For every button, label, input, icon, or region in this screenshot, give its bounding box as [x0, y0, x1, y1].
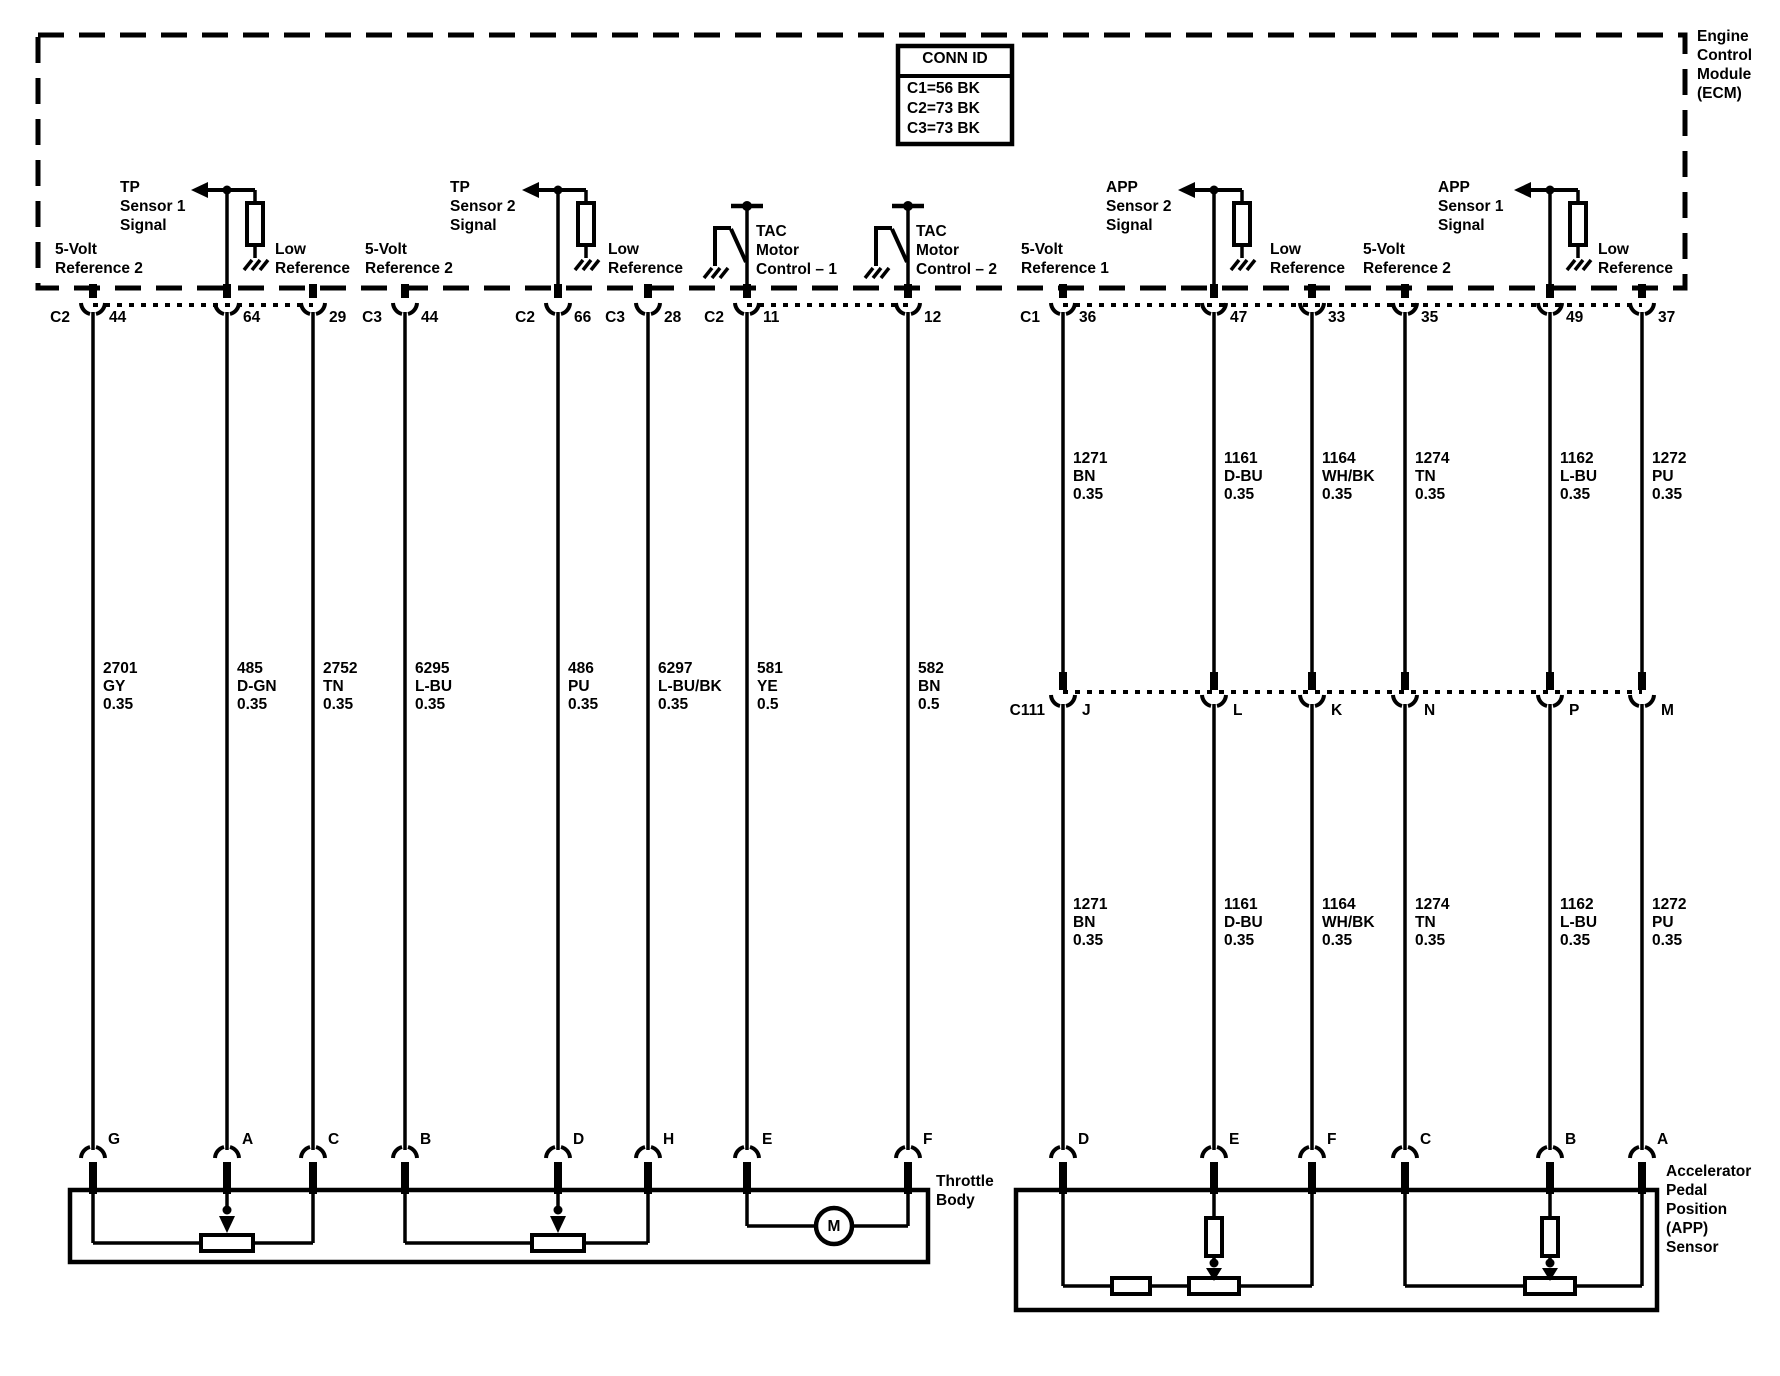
junction-dot — [223, 1206, 232, 1215]
resistor-icon — [1570, 203, 1586, 245]
component-pin-letter: E — [762, 1131, 772, 1149]
ground-icon — [865, 268, 873, 278]
connector-terminal-icon — [1538, 695, 1547, 706]
connector-terminal-icon — [1393, 695, 1402, 706]
wire-label: 1161 D-BU 0.35 — [1224, 896, 1263, 950]
wire-label: 1162 L-BU 0.35 — [1560, 896, 1597, 950]
connector-terminal-icon — [408, 1147, 417, 1158]
ecm-signal-label: Low Reference — [608, 240, 683, 278]
connector-terminal-icon — [1217, 1147, 1226, 1158]
connector-terminal-icon — [561, 1147, 570, 1158]
connector-terminal-icon — [561, 303, 570, 314]
ground-icon — [260, 260, 268, 270]
ecm-signal-label: TP Sensor 1 Signal — [120, 178, 185, 235]
ecm-signal-label: Low Reference — [1270, 240, 1345, 278]
conn-id-row: C2=73 BK — [907, 100, 980, 118]
connector-terminal-icon — [911, 303, 920, 314]
app-sensor-label: Accelerator Pedal Position (APP) Sensor — [1666, 1162, 1751, 1257]
ground-icon — [252, 260, 260, 270]
ground-icon — [873, 268, 881, 278]
connector-terminal-icon — [301, 303, 310, 314]
c111-pin-letter: L — [1233, 702, 1242, 720]
connector-terminal-icon — [1300, 695, 1309, 706]
ecm-signal-label: 5-Volt Reference 2 — [365, 240, 453, 278]
ecm-pin-number: 44 — [109, 309, 126, 327]
connector-terminal-icon — [1300, 1147, 1309, 1158]
wire-label: 2701 GY 0.35 — [103, 660, 137, 714]
component-pin-letter: C — [1420, 1131, 1431, 1149]
connector-id-label: C3 — [327, 309, 382, 327]
connector-terminal-icon — [1408, 1147, 1417, 1158]
connector-terminal-icon — [81, 303, 90, 314]
component-pin-letter: F — [1327, 1131, 1336, 1149]
resistor-icon — [578, 203, 594, 245]
wire-label: 6295 L-BU 0.35 — [415, 660, 452, 714]
throttle-body-label: Throttle Body — [936, 1172, 994, 1210]
wire-label: 485 D-GN 0.35 — [237, 660, 277, 714]
ground-icon — [1575, 260, 1583, 270]
ground-icon — [591, 260, 599, 270]
wire-label: 1271 BN 0.35 — [1073, 896, 1107, 950]
ecm-pin-number: 64 — [243, 309, 260, 327]
wire-label: 1272 PU 0.35 — [1652, 450, 1686, 504]
component-pin-letter: H — [663, 1131, 674, 1149]
connector-terminal-icon — [546, 1147, 555, 1158]
c111-pin-letter: K — [1331, 702, 1342, 720]
connector-id-label: C3 — [570, 309, 625, 327]
component-pin-letter: B — [420, 1131, 431, 1149]
ecm-signal-label: APP Sensor 1 Signal — [1438, 178, 1503, 235]
connector-terminal-icon — [1315, 695, 1324, 706]
wire-label: 1161 D-BU 0.35 — [1224, 450, 1263, 504]
switch-icon — [731, 229, 746, 262]
connector-terminal-icon — [1553, 695, 1562, 706]
ecm-pin-number: 35 — [1421, 309, 1438, 327]
wiper-arrow-icon — [219, 1216, 235, 1233]
connector-terminal-icon — [1066, 1147, 1075, 1158]
ground-icon — [720, 268, 728, 278]
wire-label: 2752 TN 0.35 — [323, 660, 357, 714]
ecm-pin-number: 33 — [1328, 309, 1345, 327]
c111-pin-letter: M — [1661, 702, 1674, 720]
connector-terminal-icon — [1202, 1147, 1211, 1158]
wire-label: 1272 PU 0.35 — [1652, 896, 1686, 950]
connector-terminal-icon — [546, 303, 555, 314]
resistor-icon — [1542, 1218, 1558, 1256]
ecm-signal-label: APP Sensor 2 Signal — [1106, 178, 1171, 235]
ground-icon — [712, 268, 720, 278]
component-pin-letter: A — [1657, 1131, 1668, 1149]
wiring-diagram: Engine Control Module (ECM) CONN ID C1=5… — [0, 0, 1780, 1376]
ecm-signal-label: TAC Motor Control – 2 — [916, 222, 997, 279]
wire-label: 486 PU 0.35 — [568, 660, 598, 714]
connector-terminal-icon — [1645, 1147, 1654, 1158]
connector-terminal-icon — [735, 303, 744, 314]
connector-terminal-icon — [735, 1147, 744, 1158]
wiper-arrow-icon — [550, 1216, 566, 1233]
ecm-signal-label: 5-Volt Reference 1 — [1021, 240, 1109, 278]
connector-terminal-icon — [393, 303, 402, 314]
connector-terminal-icon — [393, 1147, 402, 1158]
c111-pin-letter: N — [1424, 702, 1435, 720]
resistor-icon — [1206, 1218, 1222, 1256]
connector-terminal-icon — [408, 303, 417, 314]
potentiometer-icon — [201, 1235, 253, 1251]
conn-id-row: C3=73 BK — [907, 120, 980, 138]
connector-terminal-icon — [911, 1147, 920, 1158]
ecm-pin-number: 37 — [1658, 309, 1675, 327]
connector-terminal-icon — [1051, 303, 1060, 314]
connector-terminal-icon — [1066, 695, 1075, 706]
switch-icon — [892, 229, 907, 262]
component-pin-letter: A — [242, 1131, 253, 1149]
connector-terminal-icon — [1553, 1147, 1562, 1158]
connector-id-label: C1 — [985, 309, 1040, 327]
ecm-signal-label: TAC Motor Control – 1 — [756, 222, 837, 279]
ground-icon — [1583, 260, 1591, 270]
ground-icon — [1239, 260, 1247, 270]
connector-terminal-icon — [1408, 695, 1417, 706]
ecm-signal-label: 5-Volt Reference 2 — [1363, 240, 1451, 278]
ground-icon — [881, 268, 889, 278]
connector-terminal-icon — [1393, 1147, 1402, 1158]
connector-terminal-icon — [1315, 1147, 1324, 1158]
connector-terminal-icon — [1202, 695, 1211, 706]
wire-label: 582 BN 0.5 — [918, 660, 944, 714]
ecm-signal-label: 5-Volt Reference 2 — [55, 240, 143, 278]
connector-terminal-icon — [230, 1147, 239, 1158]
connector-terminal-icon — [1630, 1147, 1639, 1158]
connector-terminal-icon — [215, 303, 224, 314]
ground-icon — [575, 260, 583, 270]
wire-label: 1274 TN 0.35 — [1415, 896, 1449, 950]
connector-terminal-icon — [896, 1147, 905, 1158]
component-pin-letter: D — [1078, 1131, 1089, 1149]
ecm-title: Engine Control Module (ECM) — [1697, 27, 1752, 103]
connector-terminal-icon — [230, 303, 239, 314]
wire-label: 1271 BN 0.35 — [1073, 450, 1107, 504]
connector-terminal-icon — [1538, 1147, 1547, 1158]
wire-label: 1164 WH/BK 0.35 — [1322, 896, 1375, 950]
wire-label: 581 YE 0.5 — [757, 660, 783, 714]
ecm-pin-number: 12 — [924, 309, 941, 327]
connector-terminal-icon — [1630, 303, 1639, 314]
resistor-icon — [247, 203, 263, 245]
connector-terminal-icon — [750, 1147, 759, 1158]
connector-terminal-icon — [636, 303, 645, 314]
ground-icon — [1247, 260, 1255, 270]
ecm-pin-number: 11 — [763, 309, 779, 327]
connector-id-label: C2 — [669, 309, 724, 327]
ground-icon — [1231, 260, 1239, 270]
wire-label: 1162 L-BU 0.35 — [1560, 450, 1597, 504]
component-pin-letter: F — [923, 1131, 932, 1149]
connector-terminal-icon — [316, 1147, 325, 1158]
resistor-icon — [1234, 203, 1250, 245]
component-pin-letter: C — [328, 1131, 339, 1149]
wire-label: 6297 L-BU/BK 0.35 — [658, 660, 722, 714]
c111-pin-letter: P — [1569, 702, 1579, 720]
junction-dot — [554, 1206, 563, 1215]
component-pin-letter: D — [573, 1131, 584, 1149]
connector-terminal-icon — [636, 1147, 645, 1158]
connector-terminal-icon — [215, 1147, 224, 1158]
ecm-pin-number: 49 — [1566, 309, 1583, 327]
connector-terminal-icon — [1630, 695, 1639, 706]
connector-terminal-icon — [1217, 695, 1226, 706]
ecm-signal-label: Low Reference — [1598, 240, 1673, 278]
potentiometer-icon — [532, 1235, 584, 1251]
ground-icon — [583, 260, 591, 270]
connector-terminal-icon — [316, 303, 325, 314]
ground-icon — [244, 260, 252, 270]
connector-terminal-icon — [1051, 695, 1060, 706]
connector-terminal-icon — [301, 1147, 310, 1158]
connector-id-label: C2 — [480, 309, 535, 327]
ecm-pin-number: 36 — [1079, 309, 1096, 327]
ecm-signal-label: TP Sensor 2 Signal — [450, 178, 515, 235]
ground-icon — [704, 268, 712, 278]
ground-icon — [1567, 260, 1575, 270]
component-pin-letter: B — [1565, 1131, 1576, 1149]
component-pin-letter: G — [108, 1131, 120, 1149]
c111-connector-label: C111 — [990, 702, 1045, 720]
connector-terminal-icon — [96, 1147, 105, 1158]
c111-pin-letter: J — [1082, 702, 1091, 720]
resistor-icon — [1112, 1278, 1150, 1294]
ecm-pin-number: 44 — [421, 309, 438, 327]
conn-id-header: CONN ID — [898, 50, 1012, 68]
junction-dot — [1210, 1259, 1219, 1268]
wire-label: 1164 WH/BK 0.35 — [1322, 450, 1375, 504]
conn-id-row: C1=56 BK — [907, 80, 980, 98]
component-pin-letter: E — [1229, 1131, 1239, 1149]
ecm-pin-number: 47 — [1230, 309, 1247, 327]
wire-label: 1274 TN 0.35 — [1415, 450, 1449, 504]
connector-terminal-icon — [651, 1147, 660, 1158]
connector-id-label: C2 — [15, 309, 70, 327]
junction-dot — [1546, 1259, 1555, 1268]
connector-terminal-icon — [1645, 695, 1654, 706]
connector-terminal-icon — [651, 303, 660, 314]
connector-terminal-icon — [1645, 303, 1654, 314]
connector-terminal-icon — [81, 1147, 90, 1158]
ecm-signal-label: Low Reference — [275, 240, 350, 278]
connector-terminal-icon — [1051, 1147, 1060, 1158]
motor-label: M — [824, 1218, 844, 1236]
